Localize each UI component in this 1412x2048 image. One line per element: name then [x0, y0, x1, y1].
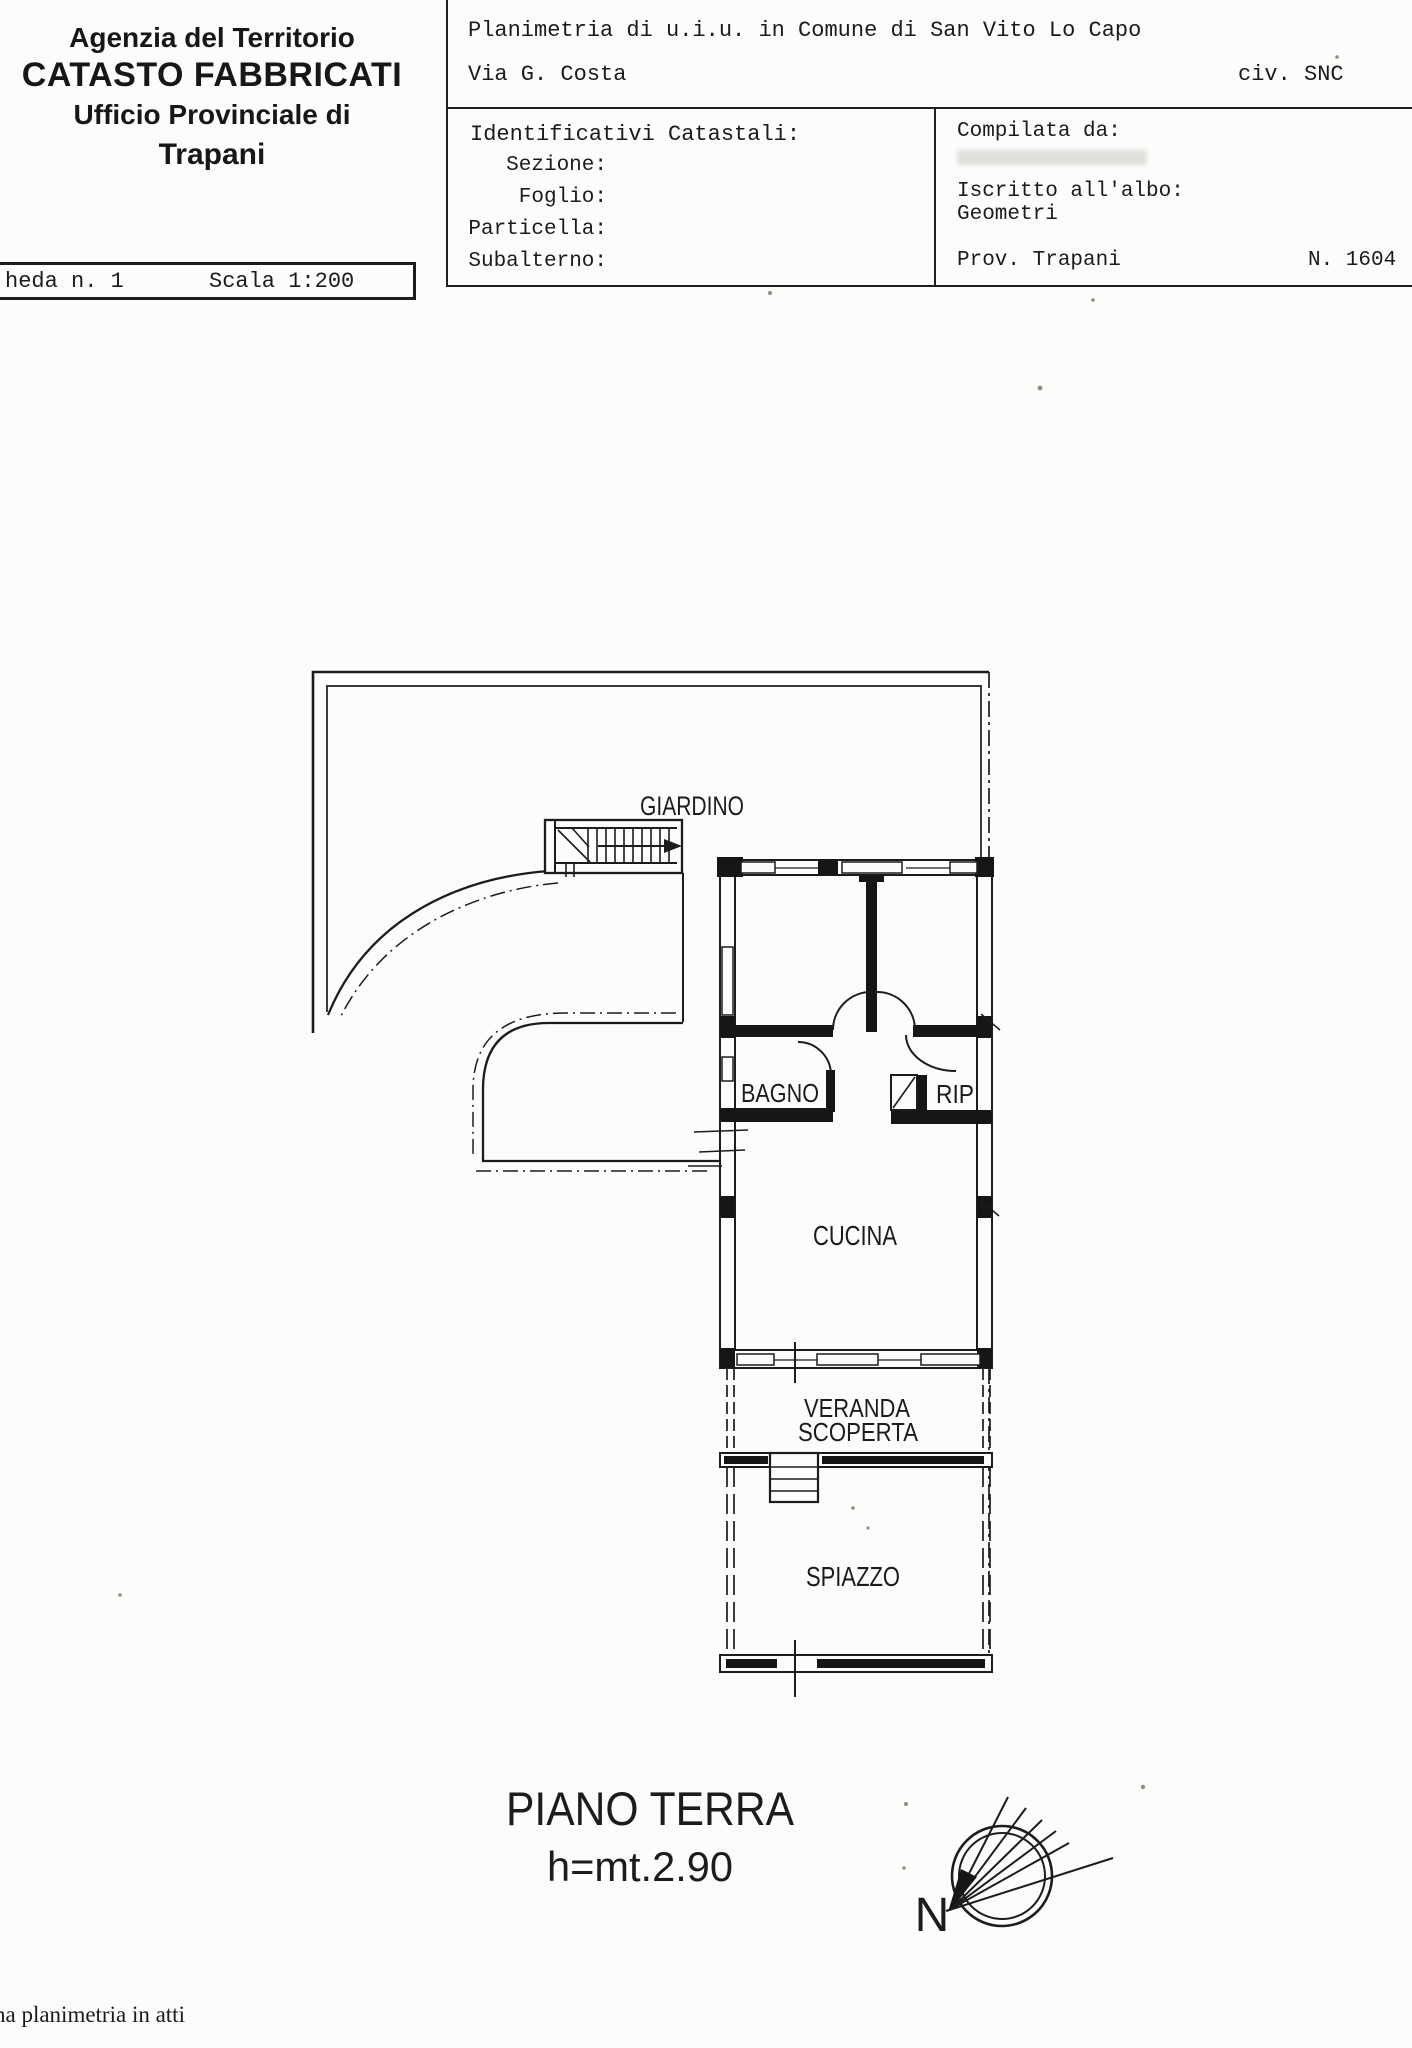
floor-title: PIANO TERRA [506, 1782, 795, 1835]
compilata-label: Compilata da: [957, 120, 1121, 143]
compass-rose [946, 1797, 1113, 1926]
room-label-rip: RIP [936, 1079, 974, 1109]
garden-stairs [545, 820, 683, 1022]
albo-number: N. 1604 [1308, 249, 1396, 272]
floor-height-note: h=mt.2.90 [547, 1843, 733, 1890]
agency-name: Agenzia del Territorio [6, 22, 418, 54]
header-vertical-divider [446, 0, 448, 285]
compass-north-label: N [915, 1889, 950, 1942]
room-label-giardino: GIARDINO [640, 791, 744, 821]
agency-provincial-office: Ufficio Provinciale di [6, 99, 418, 131]
planimetria-title: Planimetria di u.i.u. in Comune di San V… [468, 18, 1141, 43]
street-value: Via G. Costa [468, 62, 626, 87]
scanned-cadastral-document: GIARDINO BAGNO RIP CUCINA VERANDA SCOPER… [0, 0, 1412, 2048]
civic-number: civ. SNC [1238, 62, 1344, 87]
veranda-steps [770, 1453, 818, 1502]
header-row-divider [446, 107, 1412, 109]
field-label-sezione: Sezione: [455, 154, 607, 177]
footer-note: na planimetria in atti [0, 2002, 185, 2028]
province-label: Prov. Trapani [957, 249, 1121, 272]
header-cell-divider [934, 107, 936, 287]
scheda-number: heda n. 1 [5, 269, 124, 294]
header-bottom-rule [446, 285, 1412, 287]
room-label-veranda-2: SCOPERTA [798, 1417, 919, 1447]
field-label-subalterno: Subalterno: [455, 250, 607, 273]
floor-plan-drawing: GIARDINO BAGNO RIP CUCINA VERANDA SCOPER… [0, 0, 1412, 2048]
field-label-particella: Particella: [455, 218, 607, 241]
courtyard-boundary [473, 1013, 720, 1171]
field-label-foglio: Foglio: [455, 186, 607, 209]
closet-shaft [891, 1075, 917, 1110]
scale-value: Scala 1:200 [209, 269, 354, 294]
albo-label: Iscritto all'albo: [957, 180, 1184, 203]
room-label-cucina: CUCINA [813, 1220, 897, 1251]
albo-value: Geometri [957, 203, 1058, 226]
scheda-scala-box: heda n. 1 Scala 1:200 [0, 262, 416, 300]
redacted-name-smudge [957, 150, 1147, 165]
room-label-spiazzo: SPIAZZO [806, 1561, 900, 1592]
identificativi-title: Identificativi Catastali: [470, 122, 800, 147]
agency-province: Trapani [6, 138, 418, 172]
room-label-bagno: BAGNO [741, 1078, 819, 1108]
agency-office: CATASTO FABBRICATI [6, 56, 418, 95]
